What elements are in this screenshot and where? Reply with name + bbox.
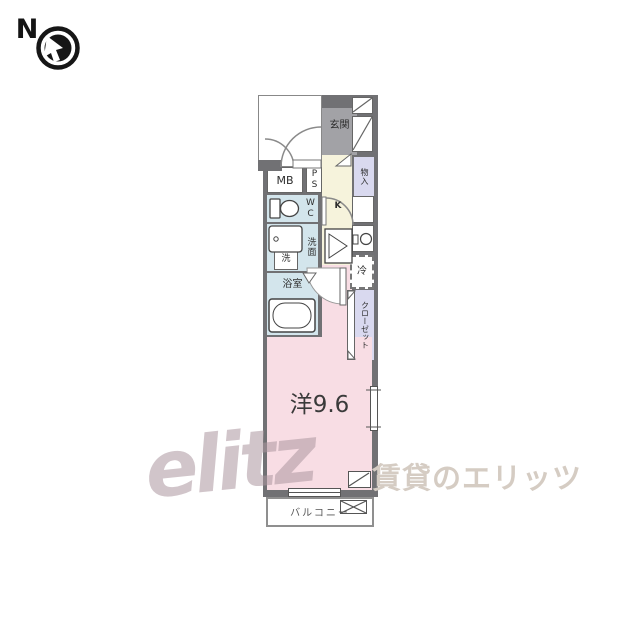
bathroom-label: 浴室: [267, 279, 318, 291]
washer-label: 洗: [274, 249, 298, 270]
meter-box-label: MB: [267, 167, 303, 193]
compass-icon: [0, 0, 640, 640]
closet-label: クローゼット: [356, 292, 373, 358]
pipe-space-label: PS: [306, 167, 322, 193]
storage-label: 物入: [355, 160, 373, 194]
toilet-label: WC: [302, 195, 318, 222]
watermark-logo: elitz: [141, 409, 319, 516]
washroom-label: 洗面: [302, 226, 318, 268]
balcony-label: バルコニー: [266, 507, 374, 520]
watermark-text: 賃貸のエリッツ: [372, 455, 582, 497]
genkan-label: 玄関: [322, 120, 357, 132]
fridge-label: 冷: [350, 255, 374, 289]
kitchen-label: K: [330, 200, 346, 212]
